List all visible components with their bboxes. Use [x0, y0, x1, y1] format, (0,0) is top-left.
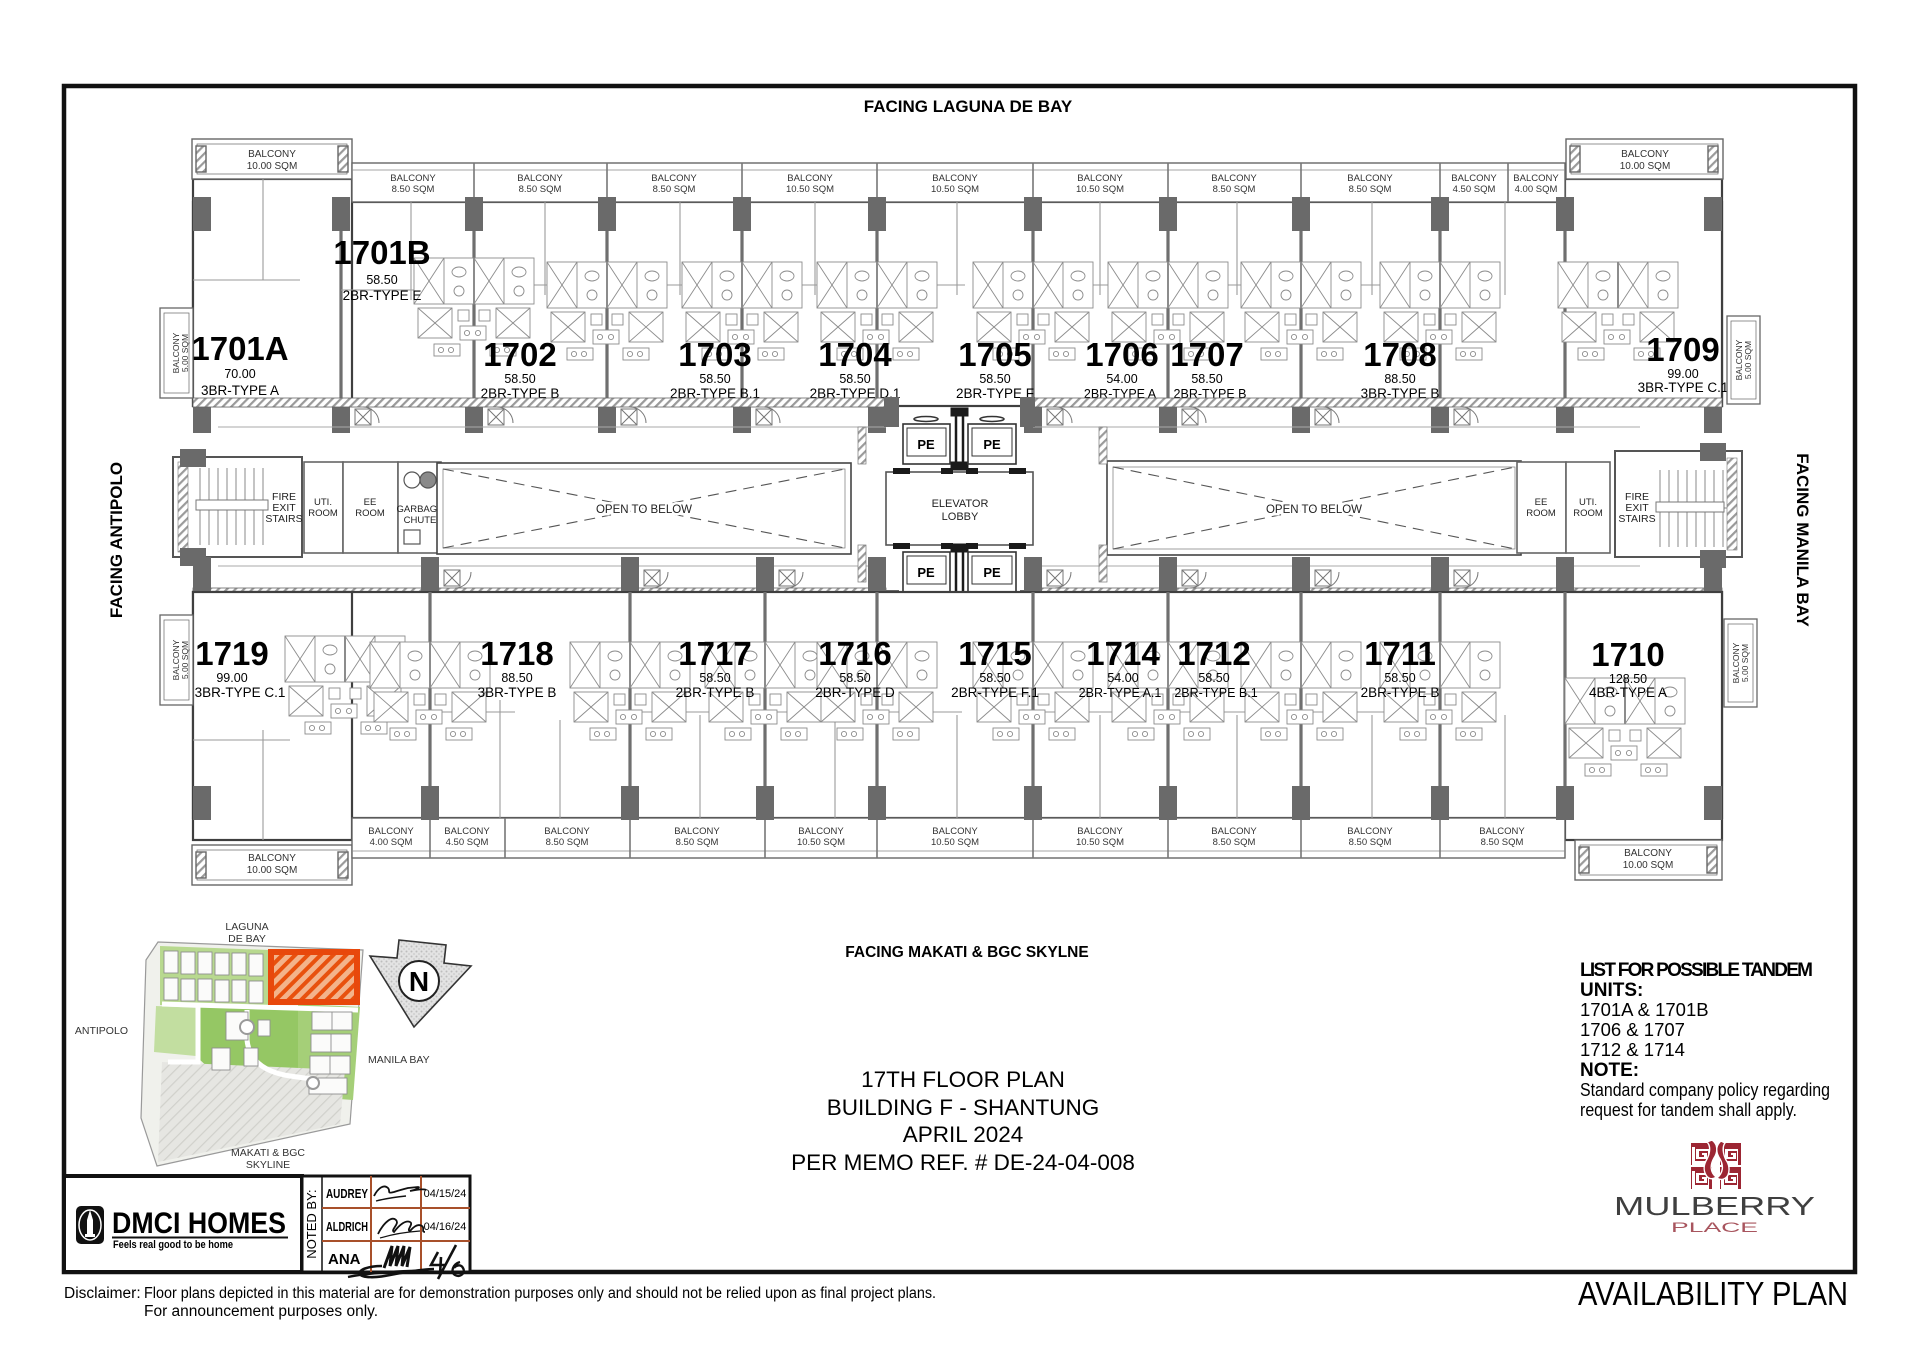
svg-text:1704: 1704: [818, 336, 892, 373]
svg-text:BALCONY: BALCONY: [1347, 826, 1393, 837]
svg-text:58.50: 58.50: [839, 671, 870, 685]
svg-text:1711: 1711: [1364, 635, 1436, 672]
svg-text:2BR-TYPE B.1: 2BR-TYPE B.1: [1174, 686, 1257, 700]
svg-text:1705: 1705: [958, 336, 1031, 373]
svg-text:PE: PE: [917, 565, 935, 580]
svg-text:BALCONY: BALCONY: [1347, 173, 1393, 184]
svg-text:1714: 1714: [1086, 635, 1160, 672]
svg-text:BALCONY: BALCONY: [444, 826, 490, 837]
svg-text:AUDREY: AUDREY: [326, 1186, 368, 1201]
svg-text:Floor plans depicted in this m: Floor plans depicted in this material ar…: [144, 1285, 936, 1302]
svg-text:AVAILABILITY PLAN: AVAILABILITY PLAN: [1578, 1275, 1848, 1312]
svg-text:3BR-TYPE C.1: 3BR-TYPE C.1: [1638, 380, 1729, 395]
svg-text:BALCONY: BALCONY: [932, 173, 978, 184]
svg-text:UNITS:: UNITS:: [1580, 980, 1643, 1001]
svg-text:ELEVATOR: ELEVATOR: [932, 498, 989, 510]
svg-text:10.50 SQM: 10.50 SQM: [786, 184, 834, 195]
svg-text:ANTIPOLO: ANTIPOLO: [75, 1025, 128, 1037]
svg-text:ROOM: ROOM: [1573, 508, 1603, 519]
svg-text:BALCONY: BALCONY: [787, 173, 833, 184]
svg-text:MANILA BAY: MANILA BAY: [368, 1054, 430, 1066]
svg-text:BALCONY: BALCONY: [1621, 149, 1669, 160]
svg-text:CHUTE: CHUTE: [404, 515, 437, 526]
svg-text:58.50: 58.50: [366, 273, 397, 287]
svg-text:ROOM: ROOM: [355, 508, 385, 519]
svg-text:8.50 SQM: 8.50 SQM: [546, 837, 589, 848]
svg-text:8.50 SQM: 8.50 SQM: [1349, 837, 1392, 848]
svg-text:2BR-TYPE B: 2BR-TYPE B: [1361, 685, 1440, 700]
svg-text:5.00 SQM: 5.00 SQM: [1740, 644, 1750, 682]
svg-text:BALCONY: BALCONY: [390, 173, 436, 184]
svg-text:2BR-TYPE B: 2BR-TYPE B: [676, 685, 755, 700]
svg-text:1703: 1703: [678, 336, 751, 373]
svg-text:04/15/24: 04/15/24: [424, 1188, 467, 1200]
svg-text:8.50 SQM: 8.50 SQM: [519, 184, 562, 195]
svg-text:58.50: 58.50: [699, 671, 730, 685]
svg-text:STAIRS: STAIRS: [265, 513, 302, 525]
svg-text:APRIL 2024: APRIL 2024: [903, 1122, 1024, 1147]
svg-text:ANA: ANA: [328, 1251, 361, 1268]
svg-text:BALCONY: BALCONY: [1479, 826, 1525, 837]
svg-text:PE: PE: [917, 437, 935, 452]
svg-text:SKYLINE: SKYLINE: [246, 1159, 290, 1171]
svg-text:8.50 SQM: 8.50 SQM: [653, 184, 696, 195]
svg-text:1715: 1715: [958, 635, 1031, 672]
svg-text:1702: 1702: [483, 336, 556, 373]
svg-text:LOBBY: LOBBY: [942, 511, 979, 523]
svg-text:EE: EE: [364, 497, 377, 508]
svg-text:BALCONY: BALCONY: [932, 826, 978, 837]
svg-text:1717: 1717: [678, 635, 751, 672]
svg-text:54.00: 54.00: [1106, 372, 1137, 386]
svg-text:PER MEMO REF. # DE-24-04-008: PER MEMO REF. # DE-24-04-008: [791, 1150, 1135, 1175]
svg-text:58.50: 58.50: [504, 372, 535, 386]
svg-text:1719: 1719: [195, 635, 268, 672]
svg-text:Feels real good to be home: Feels real good to be home: [113, 1239, 233, 1251]
svg-text:4.00 SQM: 4.00 SQM: [370, 837, 413, 848]
svg-text:Disclaimer:: Disclaimer:: [64, 1285, 141, 1302]
svg-text:10.50 SQM: 10.50 SQM: [931, 184, 979, 195]
svg-text:88.50: 88.50: [501, 671, 532, 685]
svg-text:3BR-TYPE A: 3BR-TYPE A: [201, 383, 279, 398]
svg-text:1701A & 1701B: 1701A & 1701B: [1580, 999, 1709, 1020]
svg-text:request for tandem shall apply: request for tandem shall apply.: [1580, 1099, 1797, 1120]
svg-text:1706 & 1707: 1706 & 1707: [1580, 1019, 1685, 1040]
svg-text:1712: 1712: [1177, 635, 1250, 672]
svg-text:NOTED BY:: NOTED BY:: [304, 1189, 319, 1258]
svg-text:BALCONY: BALCONY: [248, 149, 296, 160]
svg-text:5.00 SQM: 5.00 SQM: [180, 334, 190, 372]
svg-text:NOTE:: NOTE:: [1580, 1060, 1639, 1081]
svg-text:8.50 SQM: 8.50 SQM: [676, 837, 719, 848]
svg-text:BALCONY: BALCONY: [798, 826, 844, 837]
svg-text:BALCONY: BALCONY: [517, 173, 563, 184]
svg-text:88.50: 88.50: [1384, 372, 1415, 386]
svg-text:FACING MAKATI & BGC SKYLNE: FACING MAKATI & BGC SKYLNE: [845, 944, 1088, 961]
svg-text:1701A: 1701A: [191, 330, 288, 367]
svg-text:PE: PE: [983, 565, 1001, 580]
svg-text:1709: 1709: [1646, 331, 1719, 368]
svg-text:58.50: 58.50: [1191, 372, 1222, 386]
svg-text:99.00: 99.00: [216, 671, 247, 685]
svg-text:5.00 SQM: 5.00 SQM: [180, 641, 190, 679]
svg-text:128.50: 128.50: [1609, 672, 1647, 686]
svg-text:1718: 1718: [480, 635, 553, 672]
svg-text:DMCI HOMES: DMCI HOMES: [112, 1207, 286, 1240]
svg-text:N: N: [409, 966, 429, 997]
svg-text:4BR-TYPE A: 4BR-TYPE A: [1589, 685, 1667, 700]
svg-text:FACING LAGUNA DE BAY: FACING LAGUNA DE BAY: [864, 97, 1073, 116]
svg-text:BUILDING F - SHANTUNG: BUILDING F - SHANTUNG: [827, 1095, 1100, 1120]
svg-text:UTI.: UTI.: [1579, 497, 1597, 508]
svg-text:OPEN TO BELOW: OPEN TO BELOW: [596, 504, 692, 516]
svg-text:10.00 SQM: 10.00 SQM: [1620, 161, 1671, 172]
svg-text:54.00: 54.00: [1107, 671, 1138, 685]
svg-text:1706: 1706: [1085, 336, 1158, 373]
svg-text:1707: 1707: [1170, 336, 1243, 373]
svg-text:BALCONY: BALCONY: [1513, 173, 1559, 184]
svg-text:8.50 SQM: 8.50 SQM: [1213, 184, 1256, 195]
svg-text:STAIRS: STAIRS: [1618, 513, 1655, 525]
svg-text:1710: 1710: [1591, 636, 1664, 673]
svg-text:ROOM: ROOM: [1526, 508, 1556, 519]
svg-text:BALCONY: BALCONY: [674, 826, 720, 837]
svg-text:2BR-TYPE D: 2BR-TYPE D: [815, 685, 895, 700]
svg-text:4.50 SQM: 4.50 SQM: [446, 837, 489, 848]
svg-text:2BR-TYPE F.1: 2BR-TYPE F.1: [951, 685, 1039, 700]
svg-text:10.50 SQM: 10.50 SQM: [1076, 184, 1124, 195]
svg-text:PE: PE: [983, 437, 1001, 452]
svg-text:EE: EE: [1535, 497, 1548, 508]
svg-text:10.50 SQM: 10.50 SQM: [797, 837, 845, 848]
svg-text:10.00 SQM: 10.00 SQM: [247, 865, 298, 876]
svg-text:BALCONY: BALCONY: [651, 173, 697, 184]
svg-text:8.50 SQM: 8.50 SQM: [1213, 837, 1256, 848]
svg-text:58.50: 58.50: [699, 372, 730, 386]
svg-text:For announcement purposes only: For announcement purposes only.: [144, 1303, 378, 1320]
svg-text:BALCONY: BALCONY: [1211, 173, 1257, 184]
svg-text:70.00: 70.00: [224, 367, 255, 381]
svg-text:4.00 SQM: 4.00 SQM: [1515, 184, 1558, 195]
svg-text:BALCONY: BALCONY: [1077, 826, 1123, 837]
svg-text:8.50 SQM: 8.50 SQM: [392, 184, 435, 195]
svg-text:99.00: 99.00: [1667, 367, 1698, 381]
svg-text:ROOM: ROOM: [308, 508, 338, 519]
svg-text:4.50 SQM: 4.50 SQM: [1453, 184, 1496, 195]
svg-text:2BR-TYPE A.1: 2BR-TYPE A.1: [1079, 686, 1162, 700]
svg-text:04/16/24: 04/16/24: [424, 1221, 467, 1233]
svg-text:OPEN TO BELOW: OPEN TO BELOW: [1266, 504, 1362, 516]
svg-text:BALCONY: BALCONY: [1077, 173, 1123, 184]
svg-text:5.00 SQM: 5.00 SQM: [1743, 341, 1753, 379]
svg-text:BALCONY: BALCONY: [1624, 848, 1672, 859]
svg-text:MAKATI & BGC: MAKATI & BGC: [231, 1147, 305, 1159]
svg-text:3BR-TYPE B: 3BR-TYPE B: [478, 685, 557, 700]
svg-text:58.50: 58.50: [839, 372, 870, 386]
svg-text:10.00 SQM: 10.00 SQM: [247, 161, 298, 172]
svg-text:17TH FLOOR PLAN: 17TH FLOOR PLAN: [861, 1067, 1065, 1092]
svg-text:8.50 SQM: 8.50 SQM: [1481, 837, 1524, 848]
svg-text:ALDRICH: ALDRICH: [326, 1219, 368, 1234]
svg-text:FACING MANILA BAY: FACING MANILA BAY: [1793, 453, 1812, 627]
svg-text:10.00 SQM: 10.00 SQM: [1623, 860, 1674, 871]
svg-text:LAGUNA: LAGUNA: [225, 921, 268, 933]
svg-text:58.50: 58.50: [1198, 671, 1229, 685]
svg-text:BALCONY: BALCONY: [248, 853, 296, 864]
svg-text:MULBERRY: MULBERRY: [1614, 1191, 1815, 1221]
svg-text:1716: 1716: [818, 635, 891, 672]
svg-text:58.50: 58.50: [1384, 671, 1415, 685]
svg-text:LIST FOR POSSIBLE TANDEM: LIST FOR POSSIBLE TANDEM: [1580, 960, 1813, 981]
svg-text:1712 & 1714: 1712 & 1714: [1580, 1039, 1685, 1060]
svg-text:UTI.: UTI.: [314, 497, 332, 508]
svg-text:BALCONY: BALCONY: [1211, 826, 1257, 837]
svg-text:2BR-TYPE E: 2BR-TYPE E: [343, 288, 422, 303]
svg-text:1701B: 1701B: [333, 234, 430, 271]
svg-text:8.50 SQM: 8.50 SQM: [1349, 184, 1392, 195]
svg-text:BALCONY: BALCONY: [368, 826, 414, 837]
svg-text:BALCONY: BALCONY: [1451, 173, 1497, 184]
svg-text:1708: 1708: [1363, 336, 1436, 373]
svg-text:10.50 SQM: 10.50 SQM: [1076, 837, 1124, 848]
svg-text:58.50: 58.50: [979, 372, 1010, 386]
svg-text:FACING ANTIPOLO: FACING ANTIPOLO: [107, 462, 126, 618]
svg-text:Standard company policy regard: Standard company policy regarding: [1580, 1079, 1830, 1100]
svg-text:BALCONY: BALCONY: [544, 826, 590, 837]
svg-text:DE BAY: DE BAY: [228, 933, 266, 945]
svg-text:3BR-TYPE C.1: 3BR-TYPE C.1: [195, 685, 286, 700]
svg-text:58.50: 58.50: [979, 671, 1010, 685]
svg-text:10.50 SQM: 10.50 SQM: [931, 837, 979, 848]
svg-text:PLACE: PLACE: [1671, 1220, 1758, 1235]
